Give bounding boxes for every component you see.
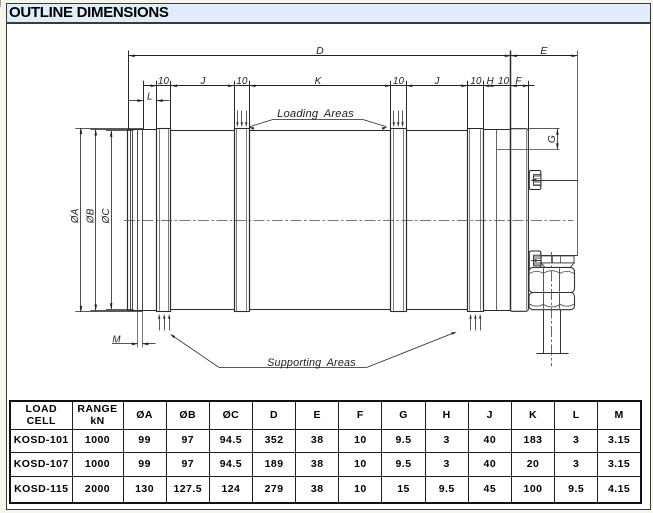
svg-text:D: D <box>316 45 324 57</box>
svg-text:10: 10 <box>236 76 248 87</box>
svg-text:G: G <box>547 135 558 143</box>
svg-text:10: 10 <box>470 76 482 87</box>
svg-text:E: E <box>540 45 548 57</box>
svg-text:H: H <box>487 76 495 87</box>
svg-text:10: 10 <box>498 76 510 87</box>
svg-text:10: 10 <box>393 76 405 87</box>
svg-text:ØB: ØB <box>85 208 96 224</box>
svg-text:Supporting Areas: Supporting Areas <box>267 357 356 369</box>
svg-text:J: J <box>199 76 205 87</box>
svg-text:M: M <box>112 335 121 346</box>
svg-text:F: F <box>515 76 522 87</box>
svg-text:Loading Areas: Loading Areas <box>277 108 354 120</box>
svg-text:10: 10 <box>158 76 170 87</box>
svg-text:ØA: ØA <box>70 208 81 224</box>
svg-text:L: L <box>147 91 153 102</box>
svg-text:ØC: ØC <box>101 208 112 225</box>
svg-text:J: J <box>433 76 439 87</box>
svg-text:K: K <box>315 76 322 87</box>
